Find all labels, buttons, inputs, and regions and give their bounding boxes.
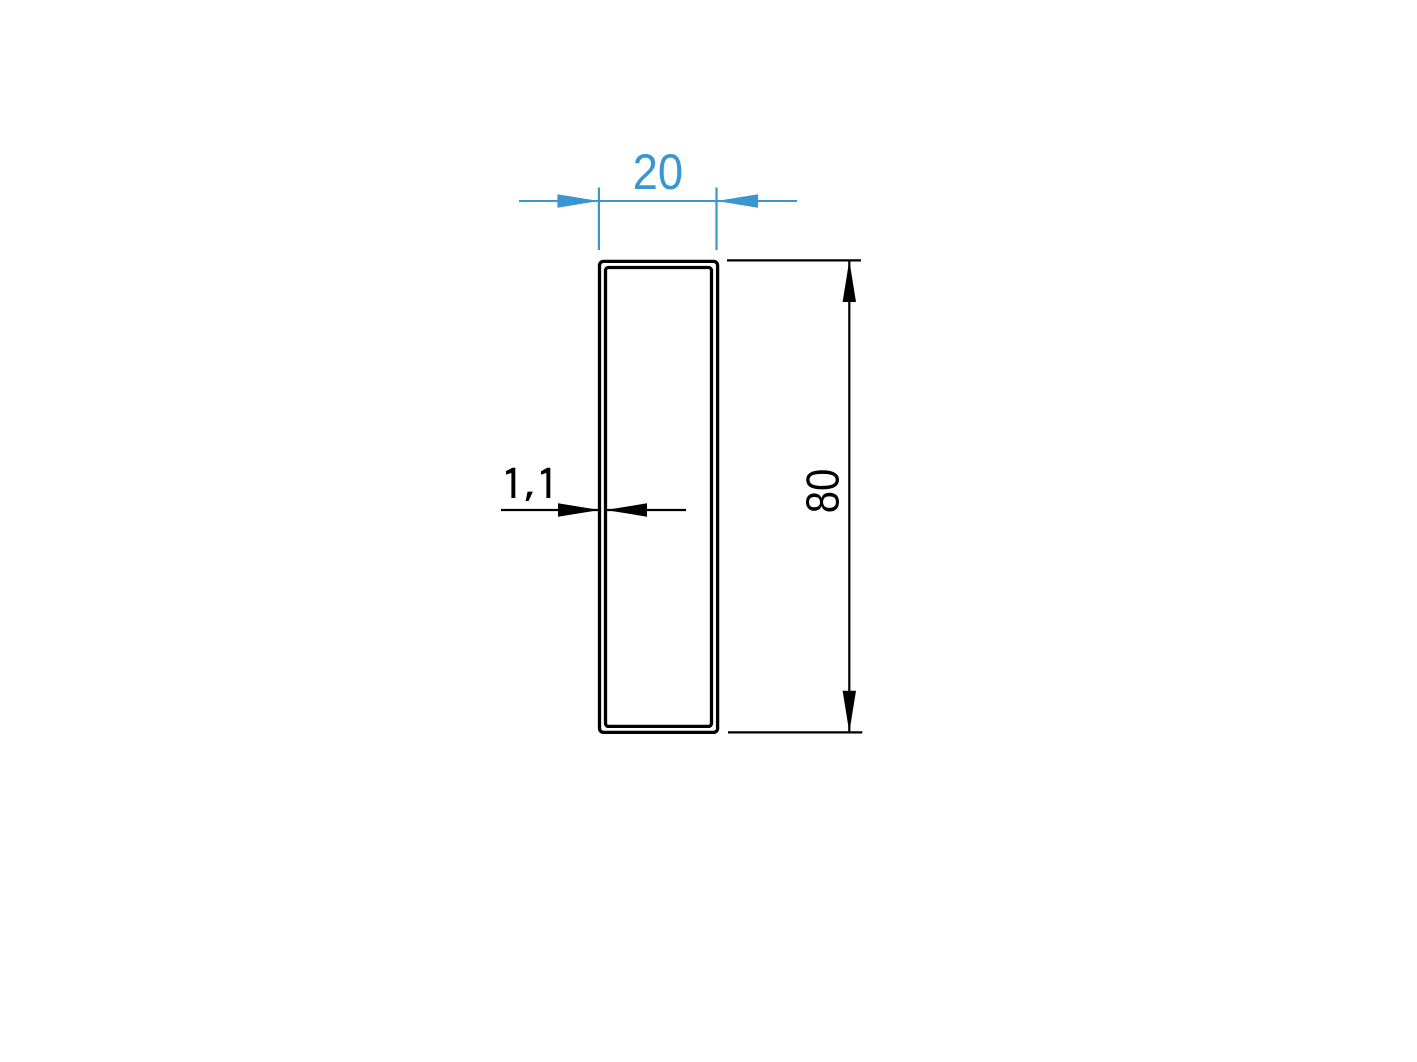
svg-text:80: 80 <box>797 469 849 514</box>
svg-text:20: 20 <box>633 144 684 200</box>
